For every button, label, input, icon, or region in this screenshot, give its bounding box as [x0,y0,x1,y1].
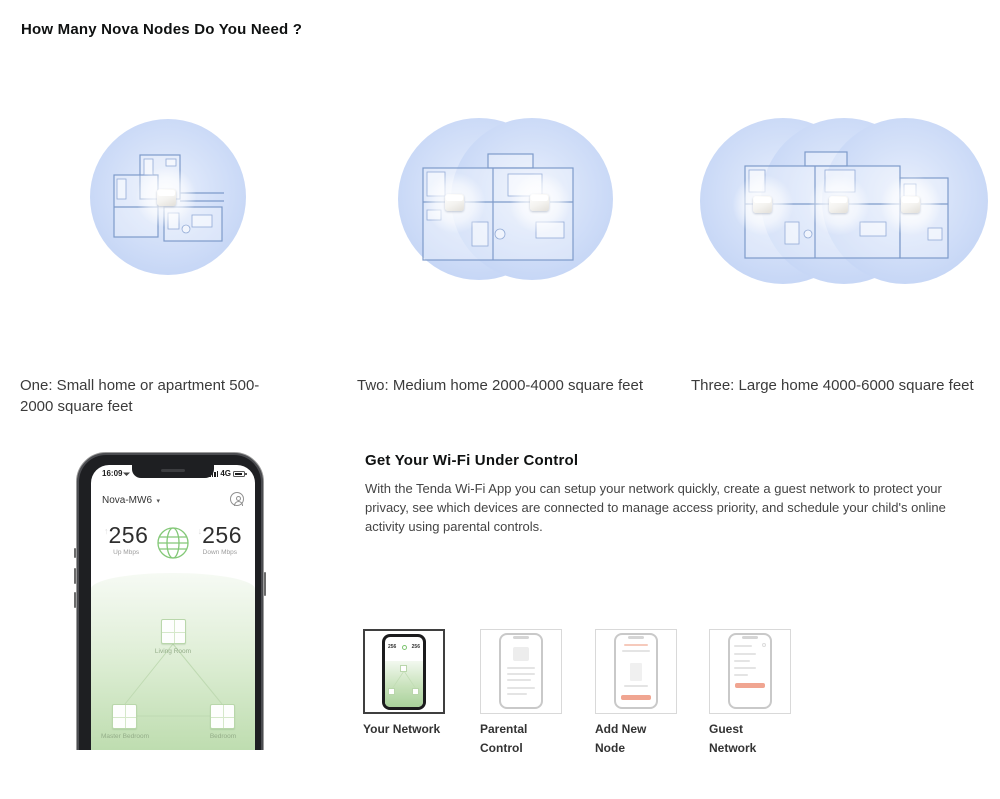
phone-side-button [264,572,266,596]
nova-node-cube [753,196,772,213]
coverage-illustration-one-node [90,119,246,275]
thumbnail-guest-network[interactable] [709,629,791,714]
upload-label: Up Mbps [104,549,148,556]
product-description-page: How Many Nova Nodes Do You Need ? [0,0,1000,799]
phone-screen: 16:09 4G Nova-MW6 ▾ [91,465,255,750]
speed-stats: ↑ 256 Up Mbps [91,522,255,561]
caption-two-nodes: Two: Medium home 2000-4000 square feet [357,375,653,396]
chevron-down-icon: ▾ [156,498,160,505]
ghost-phone [499,633,543,709]
download-value: 256 [202,522,242,549]
node-tile-master-bedroom [112,704,137,729]
node-tile-living-room [161,619,186,644]
status-time: 16:09 [102,469,122,478]
download-stat: ↓ 256 Down Mbps [198,522,242,556]
thumbnail-add-new-node[interactable] [595,629,677,714]
download-label: Down Mbps [198,549,242,556]
thumbnail-parental-control[interactable] [480,629,562,714]
ghost-phone [614,633,658,709]
room-label: Master Bedroom [91,733,165,740]
phone-notch [132,465,214,478]
thumbnail-label-parental-control: Parental Control [480,720,540,758]
app-header-bar: Nova-MW6 ▾ [102,490,244,508]
room-label: Living Room [133,648,213,655]
nova-node-cube [445,194,464,211]
location-arrow-icon [123,469,130,476]
upload-value: 256 [109,522,149,549]
battery-icon [233,471,245,477]
mini-phone: 256 256 [382,634,426,710]
ghost-phone [728,633,772,709]
account-icon [230,492,244,506]
thumbnail-label-guest-network: Guest Network [709,720,769,758]
globe-icon [155,525,191,561]
thumbnail-label-add-new-node: Add New Node [595,720,655,758]
mini-download-value: 256 [412,644,420,650]
node-tile-bedroom [210,704,235,729]
thumbnail-your-network[interactable]: 256 256 [363,629,445,714]
coverage-illustration-three-nodes [700,118,988,284]
coverage-illustration-two-nodes [398,118,613,280]
caption-three-nodes: Three: Large home 4000-6000 square feet [691,375,987,396]
nova-node-cube [829,196,848,213]
network-name: Nova-MW6 [102,495,152,506]
thumbnail-label-your-network: Your Network [363,720,455,739]
status-network: 4G [220,469,231,478]
nova-node-cube [901,196,920,213]
app-section-body: With the Tenda Wi-Fi App you can setup y… [365,479,967,536]
nova-node-cube [157,189,176,206]
nova-node-cube [530,194,549,211]
caption-one-node: One: Small home or apartment 500-2000 sq… [20,375,292,417]
upload-stat: ↑ 256 Up Mbps [104,522,148,556]
app-section-title: Get Your Wi-Fi Under Control [365,452,578,469]
mini-upload-value: 256 [388,644,396,650]
app-phone-mockup: 16:09 4G Nova-MW6 ▾ [74,452,266,750]
room-label: Bedroom [183,733,255,740]
phone-frame: 16:09 4G Nova-MW6 ▾ [76,452,264,750]
nodes-section-title: How Many Nova Nodes Do You Need ? [21,21,302,38]
mini-globe-icon [402,645,407,650]
